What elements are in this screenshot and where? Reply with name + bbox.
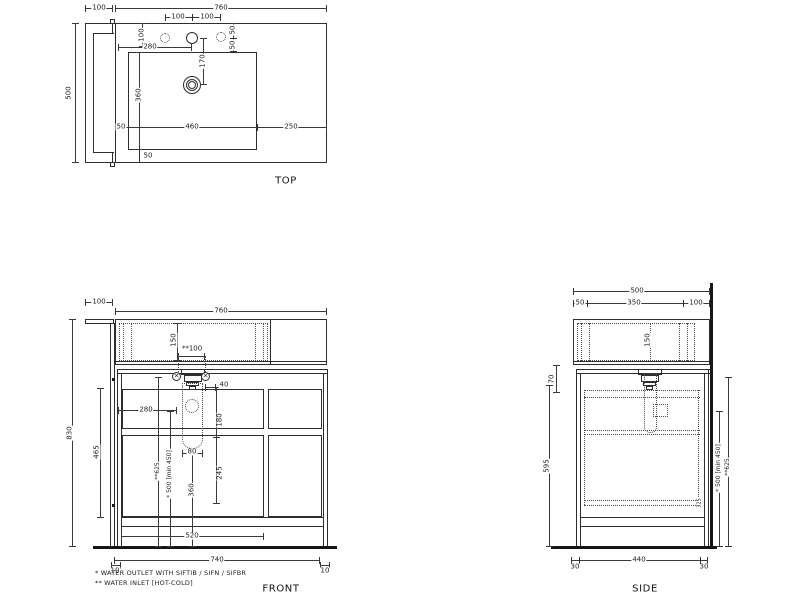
side-plinth-line: [580, 526, 704, 527]
dim-tick: [128, 124, 129, 131]
front-drawer-lower-right: [268, 435, 322, 517]
front-fixing-dot-lower: [112, 504, 115, 507]
side-view-title: SIDE: [632, 584, 658, 595]
top-faucet-hole: [186, 32, 198, 44]
side-drawer-hidden-line: [584, 390, 700, 391]
side-countertop-bottom-line: [574, 361, 709, 362]
side-cabinet-front-edge: [576, 369, 577, 547]
dim-label: 760: [213, 308, 228, 315]
side-drawer-hidden-line: [584, 505, 700, 506]
front-dim-180-245-line: [216, 387, 217, 504]
side-dim-70-line: [556, 365, 557, 393]
front-basin-hidden-line: [263, 323, 264, 361]
dim-label: 830: [67, 425, 74, 440]
dim-label: 70: [549, 374, 556, 385]
side-drawer-hidden-line: [584, 434, 700, 435]
dim-label: 150: [171, 332, 178, 347]
dim-label: 170: [200, 53, 207, 68]
dim-label: 250: [283, 124, 298, 131]
top-dim-50-bottom-line: [139, 150, 140, 163]
dim-label: **100: [181, 346, 203, 353]
water-inlet-valve-icon: ✕: [172, 372, 181, 381]
side-cabinet-back-edge-inner: [704, 373, 705, 547]
front-cabinet-right-side: [327, 369, 328, 547]
dim-label: 50: [230, 40, 237, 51]
top-optional-hole-right: [216, 32, 226, 42]
side-cabinet-back-edge: [708, 369, 709, 547]
dim-label: 30: [570, 564, 581, 571]
dim-label: 50: [575, 300, 586, 307]
top-side-panel-notch: [93, 33, 114, 153]
side-siphon-hidden-outline: [644, 373, 657, 433]
dim-label: 180: [217, 412, 224, 427]
side-drawer-hidden-line: [584, 500, 700, 501]
front-view-title: FRONT: [262, 584, 299, 595]
front-cabinet-top-rail: [117, 369, 327, 370]
dim-label: 100: [199, 14, 214, 21]
front-bottom-line: [121, 517, 323, 518]
side-wall-line: [710, 283, 713, 547]
front-cabinet-top-rail-inner: [117, 373, 327, 374]
dim-tick: [683, 300, 684, 307]
technical-drawing-canvas: 100 760 100 100 500 100 280 50 50 170 36…: [0, 0, 800, 600]
dim-label: * 500 [min 450]: [716, 443, 722, 493]
dim-label: 100: [91, 5, 106, 12]
front-plinth-line: [121, 526, 323, 527]
dim-label: 460: [184, 124, 199, 131]
side-basin-hidden-line: [589, 323, 590, 361]
side-siphon-outlet-box: [653, 404, 668, 417]
front-siphon-nut: [185, 399, 199, 413]
dim-label: 350: [626, 300, 641, 307]
side-drawer-hidden-side: [584, 390, 585, 505]
dim-label: 740: [209, 557, 224, 564]
dim-label: 245: [217, 465, 224, 480]
water-inlet-valve-icon: ✕: [201, 372, 210, 381]
dim-label: 280: [138, 407, 153, 414]
front-fixing-dot-upper: [112, 378, 115, 381]
dim-label: 325: [698, 497, 703, 509]
dim-label: 465: [94, 444, 101, 459]
dim-label: 150: [645, 332, 652, 347]
side-floor-line: [551, 546, 717, 549]
side-cabinet-front-edge-inner: [580, 373, 581, 547]
dim-label: 595: [544, 458, 551, 473]
dim-label: 30: [699, 564, 710, 571]
front-cabinet-right-side-inner: [323, 373, 324, 547]
front-basin-hidden-line: [255, 323, 256, 361]
front-siphon-outline: [182, 383, 203, 449]
side-cabinet-top-rail: [576, 369, 710, 370]
dim-label: 360: [189, 482, 196, 497]
top-dim-depth-line: [75, 23, 76, 163]
dim-label: 280: [142, 44, 157, 51]
dim-label: 50: [116, 124, 127, 131]
dim-label: 500: [66, 85, 73, 100]
dim-label: 40: [219, 382, 230, 389]
side-drawer-hidden-line: [584, 430, 700, 431]
side-basin-hidden-line: [581, 323, 582, 361]
dim-tick: [257, 124, 258, 131]
front-floor-line: [93, 546, 337, 549]
side-drawer-hidden-line: [584, 397, 700, 398]
dim-label: 440: [631, 557, 646, 564]
dim-label: **625: [155, 461, 161, 480]
dim-label: 100: [688, 300, 703, 307]
side-cabinet-top-rail-inner: [576, 373, 710, 374]
dim-label: 360: [136, 87, 143, 102]
side-drawer-hidden-side: [698, 390, 699, 505]
dim-tick: [192, 14, 193, 21]
top-view-title: TOP: [275, 176, 297, 187]
dim-label: **625: [725, 457, 731, 476]
side-basin-hidden-outline: [577, 323, 695, 361]
footnote-water-inlet: ** WATER INLET [HOT-COLD]: [95, 579, 193, 588]
dim-label: 50: [230, 25, 237, 36]
top-drain-inner-ring: [188, 81, 196, 89]
dim-tick: [213, 437, 220, 438]
front-drain-body: [184, 375, 202, 382]
dim-label: * 500 [min 450]: [167, 449, 173, 499]
dim-label: 100: [91, 299, 106, 306]
valve-cross-glyph: ✕: [174, 372, 180, 380]
dim-tick: [587, 300, 588, 307]
dim-label: 50: [143, 153, 154, 160]
front-basin-hidden-line: [131, 323, 132, 361]
footnote-water-outlet: * WATER OUTLET WITH SIFTIB / SIFN / SIFB…: [95, 569, 246, 578]
dim-label: 760: [213, 5, 228, 12]
dim-label: 520: [184, 533, 199, 540]
front-counter-divider: [270, 319, 271, 365]
side-basin-hidden-line: [687, 323, 688, 361]
side-bottom-line: [580, 517, 704, 518]
dim-label: 100: [139, 27, 146, 42]
dim-label: 80: [187, 449, 198, 456]
side-basin-hidden-line: [679, 323, 680, 361]
front-cabinet-left-side: [117, 369, 118, 547]
front-drawer-upper-right: [268, 389, 322, 429]
dim-label: 100: [170, 14, 185, 21]
top-optional-hole-left: [160, 33, 170, 43]
front-dim-inlet-line: [178, 356, 205, 357]
valve-cross-glyph: ✕: [203, 372, 209, 380]
front-basin-hidden-line: [123, 323, 124, 361]
dim-label: 10: [320, 568, 331, 575]
dim-label: 500: [629, 288, 644, 295]
front-countertop-bottom-line: [116, 361, 326, 362]
top-basin-outline: [128, 52, 257, 150]
